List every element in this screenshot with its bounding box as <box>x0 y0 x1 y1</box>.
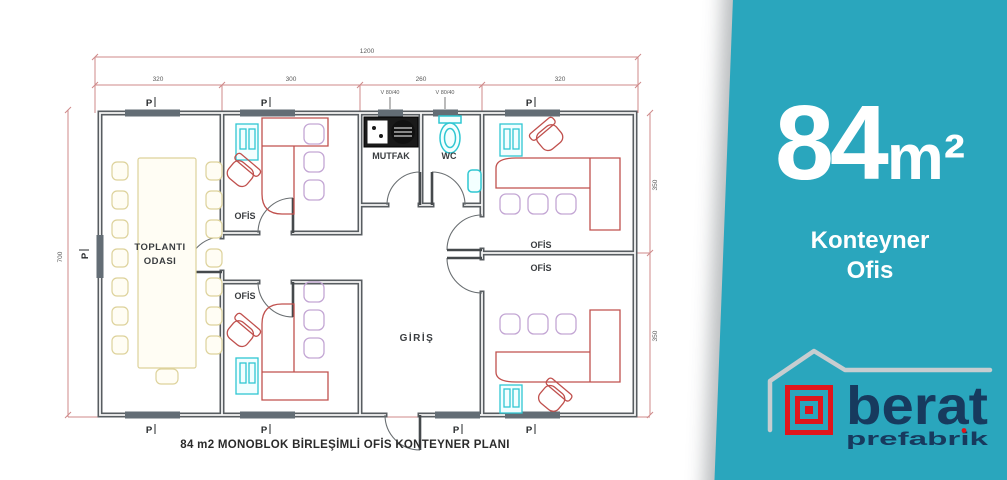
window-label-bottom-4: P <box>526 425 533 436</box>
window-label-bottom-1: P <box>146 425 153 436</box>
room-label-wc: WC <box>442 151 457 161</box>
floor-plan: 1200 320 300 260 320 700 350 350 <box>0 0 740 480</box>
vasistas-label-wc: V 80/40 <box>436 90 455 96</box>
window-label-bottom-2: P <box>261 425 268 436</box>
brand-square-icon <box>788 388 831 433</box>
room-label-office-bottom-right: OFİS <box>530 263 551 273</box>
office-bottom-right-furniture <box>496 310 620 416</box>
plan-caption: 84 m2 MONOBLOK BİRLEŞİMLİ OFİS KONTEYNER… <box>180 438 509 451</box>
dim-seg3: 260 <box>416 76 427 83</box>
room-label-office-top-left: OFİS <box>234 211 255 221</box>
info-panel-content: 84 m² Konteyner Ofis b <box>734 0 1007 480</box>
info-panel: 84 m² Konteyner Ofis b <box>712 0 1007 480</box>
dim-right-bottom: 350 <box>652 330 659 341</box>
room-label-entrance: GİRİŞ <box>400 331 435 344</box>
doors <box>187 172 482 450</box>
screenshot: 1200 320 300 260 320 700 350 350 <box>0 0 1007 480</box>
room-label-office-top-right: OFİS <box>530 240 551 250</box>
room-label-meeting-2: ODASI <box>144 256 177 267</box>
office-top-left-furniture <box>222 118 328 214</box>
vasistas-label-kitchen: V 80/40 <box>381 90 400 96</box>
window-label-left: P <box>80 252 91 259</box>
subtitle-line1: Konteyner <box>750 226 990 256</box>
kitchen-counter <box>364 117 418 147</box>
brand-i-dot <box>962 428 967 433</box>
window-label-bottom-3: P <box>453 425 460 436</box>
brand-tagline: prefabrik <box>846 428 989 449</box>
room-label-office-bottom-left: OFİS <box>234 291 255 301</box>
dim-total-height: 700 <box>57 251 64 262</box>
area-unit: m² <box>887 125 965 189</box>
floor-plan-svg: 1200 320 300 260 320 700 350 350 <box>0 0 740 480</box>
brand-name: berat <box>846 376 988 436</box>
area-value: 84 <box>775 90 885 196</box>
brand-logo-svg: berat prefabrik <box>762 348 994 454</box>
area-headline: 84 m² <box>750 90 990 196</box>
dim-total-width: 1200 <box>360 48 375 55</box>
dim-right-top: 350 <box>652 179 659 190</box>
office-top-right-furniture <box>496 116 620 230</box>
dim-seg4: 320 <box>555 76 566 83</box>
dim-seg2: 300 <box>286 76 297 83</box>
window-label-top-2: P <box>261 98 268 109</box>
vasistas-labels: V 80/40 V 80/40 <box>381 90 455 109</box>
subtitle-line2: Ofis <box>750 256 990 286</box>
brand-logo: berat prefabrik <box>762 348 994 454</box>
room-label-kitchen: MUTFAK <box>372 151 410 161</box>
window-label-top-1: P <box>146 98 153 109</box>
dim-seg1: 320 <box>153 76 164 83</box>
panel-subtitle: Konteyner Ofis <box>750 226 990 286</box>
room-label-meeting-1: TOPLANTI <box>134 242 185 253</box>
window-label-top-3: P <box>526 98 533 109</box>
